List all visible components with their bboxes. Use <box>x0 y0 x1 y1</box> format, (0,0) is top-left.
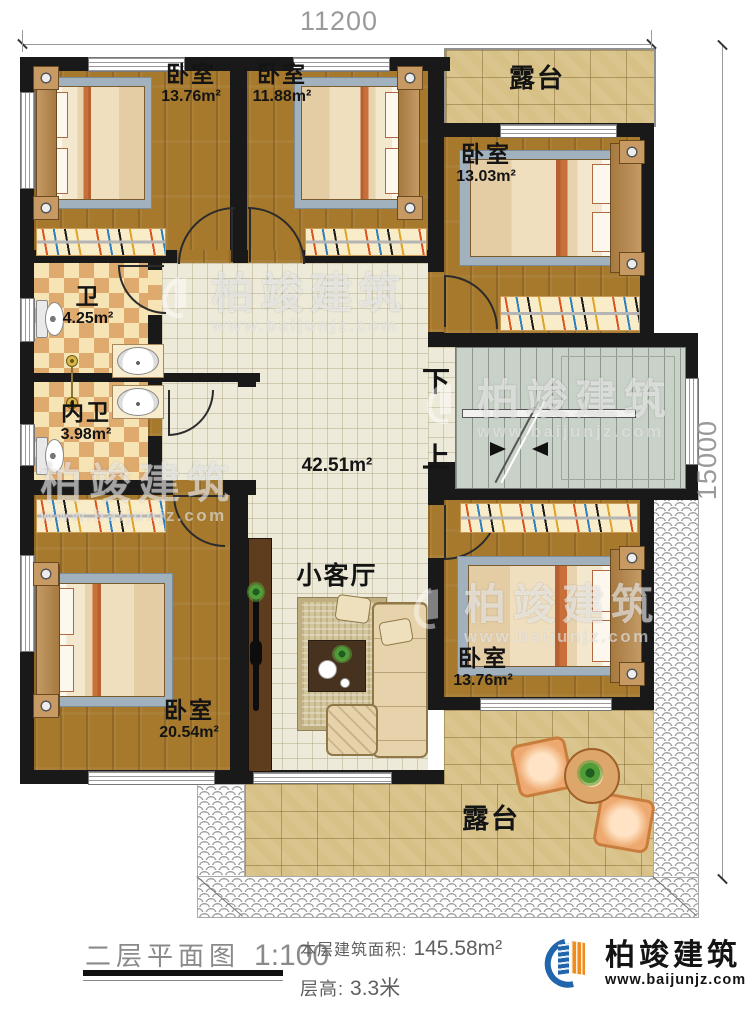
label-bedroom-top-left: 卧室 13.76m² <box>138 62 244 106</box>
logo-building-orange <box>571 941 585 975</box>
stairwell <box>455 347 686 489</box>
logo-swoosh <box>535 929 602 997</box>
door-leaf-bedroom-br <box>444 505 446 558</box>
window-bedroom-bl-bottom <box>88 771 215 785</box>
floor-area-info: 本层建筑面积: 145.58m² <box>300 936 502 961</box>
label-terrace-bottom: 露台 <box>446 804 536 834</box>
wall-under-inner-bath-1 <box>20 480 173 495</box>
sink-bathroom <box>117 347 159 375</box>
room-area: 4.25m² <box>42 310 134 328</box>
brand-logo-text: 柏竣建筑 www.baijunjz.com <box>605 939 746 988</box>
room-name: 卧室 <box>436 142 536 168</box>
label-bathroom: 卫 4.25m² <box>42 284 134 328</box>
door-leaf-inner-bath <box>168 390 170 434</box>
door-leaf-bedroom-tl <box>231 207 233 262</box>
floor-plan: 下 上 <box>0 0 750 1009</box>
wall-vestibule-pier <box>238 373 256 387</box>
stair-inner-guide <box>561 356 675 480</box>
slider-living-terrace <box>253 772 392 784</box>
nightstand <box>619 252 645 276</box>
floor-height-info: 层高: 3.3米 <box>300 972 400 1002</box>
brand-website: www.baijunjz.com <box>605 972 746 988</box>
shower-rail <box>71 362 73 402</box>
room-name: 内卫 <box>36 400 136 426</box>
door-leaf-bedroom-tm <box>249 207 251 262</box>
label-living-area: 42.51m² <box>282 455 392 476</box>
stair-arrow-left <box>532 442 548 456</box>
door-leaf-bedroom-tr <box>444 275 446 327</box>
plant-coffee-table <box>332 645 352 663</box>
room-name: 小客厅 <box>282 562 392 590</box>
bed-top-left <box>36 74 146 212</box>
awning-bottom <box>197 876 699 918</box>
nightstand <box>397 66 423 90</box>
tea-cup <box>340 678 350 688</box>
brand-logo: 柏竣建筑 www.baijunjz.com <box>543 936 746 990</box>
awning-right <box>653 490 699 878</box>
dimension-ext <box>22 30 23 52</box>
wardrobe-bedroom-tl <box>36 228 166 256</box>
label-bedroom-bottom-left: 卧室 20.54m² <box>134 698 244 742</box>
sofa-cushion-top <box>334 594 371 624</box>
nightstand <box>33 66 59 90</box>
room-area: 20.54m² <box>134 724 244 742</box>
stair-down-label: 下 <box>422 360 450 400</box>
drawing-title: 二层平面图 1:100 <box>85 936 329 973</box>
title-text: 二层平面图 <box>85 936 240 973</box>
room-area: 13.03m² <box>436 168 536 186</box>
dimension-width: 11200 <box>300 6 378 37</box>
logo-building-blue <box>558 943 569 975</box>
brand-logo-icon <box>543 936 595 990</box>
room-area: 13.76m² <box>138 88 244 106</box>
shower-knob <box>66 355 78 367</box>
room-name: 卧室 <box>428 646 538 672</box>
room-area: 11.88m² <box>232 88 332 106</box>
nightstand <box>397 196 423 220</box>
wardrobe-bedroom-tm <box>305 228 427 256</box>
nightstand <box>619 662 645 686</box>
ottoman <box>326 704 378 756</box>
room-name: 卫 <box>42 284 134 310</box>
floor-height-value: 3.3米 <box>350 972 400 1002</box>
wardrobe-bedroom-br <box>460 503 638 533</box>
label-inner-bathroom: 内卫 3.98m² <box>36 400 136 444</box>
plant-tv <box>247 582 265 602</box>
room-name: 卧室 <box>232 62 332 88</box>
stair-arrow-right <box>490 442 506 456</box>
wardrobe-bedroom-bl <box>36 499 166 533</box>
dimension-ext <box>651 30 652 52</box>
window-left-inner-bath <box>20 424 35 466</box>
title-underline-thin <box>83 980 283 981</box>
tv-lens <box>250 640 262 666</box>
wall-under-inner-bath-2 <box>223 480 256 495</box>
door-leaf-bathroom <box>118 265 164 267</box>
wall-inner-bath-right-2 <box>148 436 162 482</box>
plant-terrace-table <box>577 760 603 786</box>
title-underline-thick <box>83 970 283 976</box>
room-name: 卧室 <box>138 62 244 88</box>
wall-bedrooms-bottom-2 <box>233 250 248 263</box>
wall-stairs-top <box>444 333 698 347</box>
nightstand <box>33 196 59 220</box>
window-terrace-top <box>500 124 617 138</box>
wardrobe-bedroom-tr <box>500 296 640 331</box>
dimension-line-top <box>22 44 652 45</box>
room-name: 露台 <box>492 64 582 93</box>
bed-bottom-left <box>36 570 166 710</box>
nightstand <box>33 562 59 586</box>
label-living-name: 小客厅 <box>282 562 392 590</box>
label-bedroom-bottom-right: 卧室 13.76m² <box>428 646 538 690</box>
door-gap-bedroom-tr <box>428 272 444 332</box>
door-gap-bedroom-br <box>428 505 444 558</box>
window-left-bathroom <box>20 298 35 342</box>
toilet-bowl <box>45 439 64 473</box>
nightstand <box>33 694 59 718</box>
door-gap-bedroom-bl <box>173 480 223 495</box>
stair-rail <box>462 409 636 418</box>
floor-area-value: 145.58m² <box>413 937 502 961</box>
bed-headboard <box>36 564 60 715</box>
floor-height-label: 层高: <box>300 975 344 1001</box>
window-left-bedroom-tl <box>20 92 35 189</box>
room-name: 卧室 <box>134 698 244 724</box>
nightstand <box>619 546 645 570</box>
room-area: 13.76m² <box>428 672 538 690</box>
nightstand <box>619 140 645 164</box>
floor-area-label: 本层建筑面积: <box>300 936 407 960</box>
door-leaf-bedroom-bl <box>173 495 223 497</box>
stair-up-label: 上 <box>422 436 450 476</box>
dimension-height: 15000 <box>692 420 723 500</box>
label-bedroom-top-middle: 卧室 11.88m² <box>232 62 332 106</box>
brand-name: 柏竣建筑 <box>605 939 746 972</box>
room-name: 露台 <box>446 804 536 834</box>
room-area: 3.98m² <box>36 426 136 444</box>
label-terrace-top: 露台 <box>492 64 582 93</box>
label-bedroom-top-right: 卧室 13.03m² <box>436 142 536 186</box>
window-bedroom-br-bottom <box>480 698 612 711</box>
wall-center-vertical-stub <box>428 332 444 347</box>
tea-plate <box>318 660 337 679</box>
room-area: 42.51m² <box>282 455 392 476</box>
